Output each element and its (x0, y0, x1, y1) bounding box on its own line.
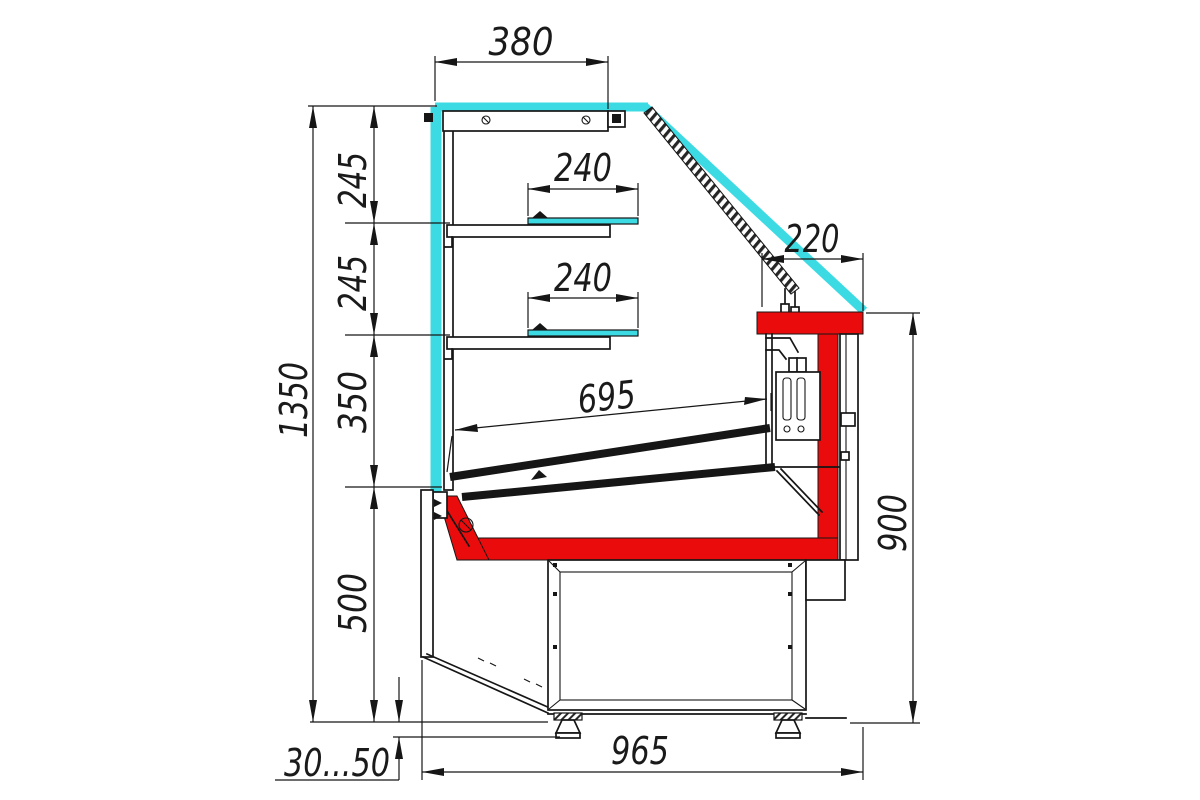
dim-240u-value: 240 (554, 146, 612, 190)
dim-695-arrow-left (455, 424, 478, 432)
shelf-upper-bracket (447, 225, 610, 237)
front-panel-bracket (841, 413, 855, 426)
screw-mark (553, 592, 557, 596)
dimension-900: 900 (850, 313, 920, 723)
dimension-240-upper: 240 (528, 146, 638, 216)
dim-245a-value: 245 (331, 152, 375, 208)
support-strut-b (781, 469, 822, 512)
base-right-attachment (806, 560, 845, 600)
dim-350-value: 350 (331, 371, 375, 433)
chain-arrow (370, 313, 378, 335)
front-column (818, 334, 838, 540)
front-top-rail (757, 312, 863, 334)
chain-arrow (370, 700, 378, 722)
dim-500-value: 500 (331, 573, 375, 633)
chain-arrow (370, 465, 378, 487)
glass-sloped-front (645, 107, 864, 311)
dim-1350-arrow-bottom (309, 700, 317, 722)
dim-3050-arrow-down (395, 700, 403, 722)
shelf-upper-clip (532, 211, 548, 218)
dim-245b-value: 245 (331, 255, 375, 311)
dim-900-arrow-bottom (909, 701, 917, 723)
shelf-upper (445, 211, 638, 247)
foot-right (774, 713, 802, 738)
screw-mark (788, 592, 792, 596)
dim-380-arrow-right (586, 58, 608, 66)
support-strut-a (777, 471, 819, 515)
deck-front-band (457, 538, 838, 560)
chain-arrow (370, 335, 378, 357)
chain-arrow (370, 106, 378, 128)
deck-clip (531, 470, 547, 480)
curtain-hatched-band (644, 107, 799, 294)
front-lower-panel (840, 334, 858, 560)
dim-380-value: 380 (489, 20, 554, 64)
screw-mark (788, 645, 792, 649)
vent-dash (490, 663, 496, 666)
dim-900-arrow-top (909, 313, 917, 335)
foot-left-mount (554, 713, 582, 720)
dim-240l-value: 240 (554, 256, 612, 300)
top-corner-bracket (424, 113, 433, 122)
front-panel-body (840, 334, 858, 560)
case-structure (421, 111, 858, 738)
base-left-wall (421, 490, 433, 657)
foot-right-base (776, 733, 800, 738)
dimension-695: 695 (447, 372, 771, 472)
dimension-380: 380 (435, 20, 608, 109)
foot-right-cone (776, 720, 800, 733)
base-cabinet (421, 490, 846, 718)
shelf-lower (445, 323, 638, 359)
screw-mark (788, 563, 792, 567)
dim-3050-arrow-up (395, 737, 403, 759)
canopy-end-block (612, 114, 621, 123)
chain-arrow (370, 223, 378, 245)
dim-965-value: 965 (611, 729, 669, 773)
foot-left (554, 713, 582, 738)
back-duct-wall (444, 112, 453, 490)
vent-dash (536, 684, 542, 687)
foot-right-mount (774, 713, 802, 720)
shelf-upper-glass (528, 218, 638, 224)
front-panel-clip (841, 452, 849, 460)
dim-695-value: 695 (576, 372, 638, 422)
base-front-diagonal-a (423, 657, 548, 713)
dim-900-value: 900 (871, 494, 915, 552)
dim-1350-arrow-top (309, 106, 317, 128)
dim-240l-arrow-right (616, 294, 638, 302)
dim-240u-arrow-right (616, 185, 638, 193)
vent-dash (478, 658, 484, 661)
dim-380-arrow-left (435, 58, 457, 66)
screw-mark (553, 645, 557, 649)
shelf-lower-glass (528, 330, 638, 336)
dim-240l-arrow-left (528, 294, 550, 302)
dim-240u-arrow-left (528, 185, 550, 193)
dim-1350-value: 1350 (272, 362, 316, 438)
canopy (443, 111, 608, 131)
dimension-240-lower: 240 (528, 256, 638, 328)
dim-965-arrow-right (841, 768, 863, 776)
foot-left-cone (556, 720, 580, 733)
machine-box-outer (548, 560, 806, 710)
display-case-section-drawing: 380 240 240 220 695 1350 (0, 0, 1200, 800)
technical-drawing-canvas: 380 240 240 220 695 1350 (0, 0, 1200, 800)
dim-220-value: 220 (785, 217, 840, 261)
dim-3050-value: 30...50 (284, 741, 390, 785)
base-front-diagonal-b (427, 654, 550, 708)
dim-695-arrow-right (744, 397, 767, 405)
shelf-lower-clip (532, 323, 548, 330)
pipe-lower (766, 350, 786, 359)
vent-dash (524, 679, 530, 682)
night-curtain (644, 107, 799, 316)
shelf-lower-bracket (447, 337, 610, 349)
screw-mark (553, 563, 557, 567)
dim-220-arrow-right (841, 255, 863, 263)
dim-965-arrow-left (422, 768, 444, 776)
chain-arrow (370, 487, 378, 509)
